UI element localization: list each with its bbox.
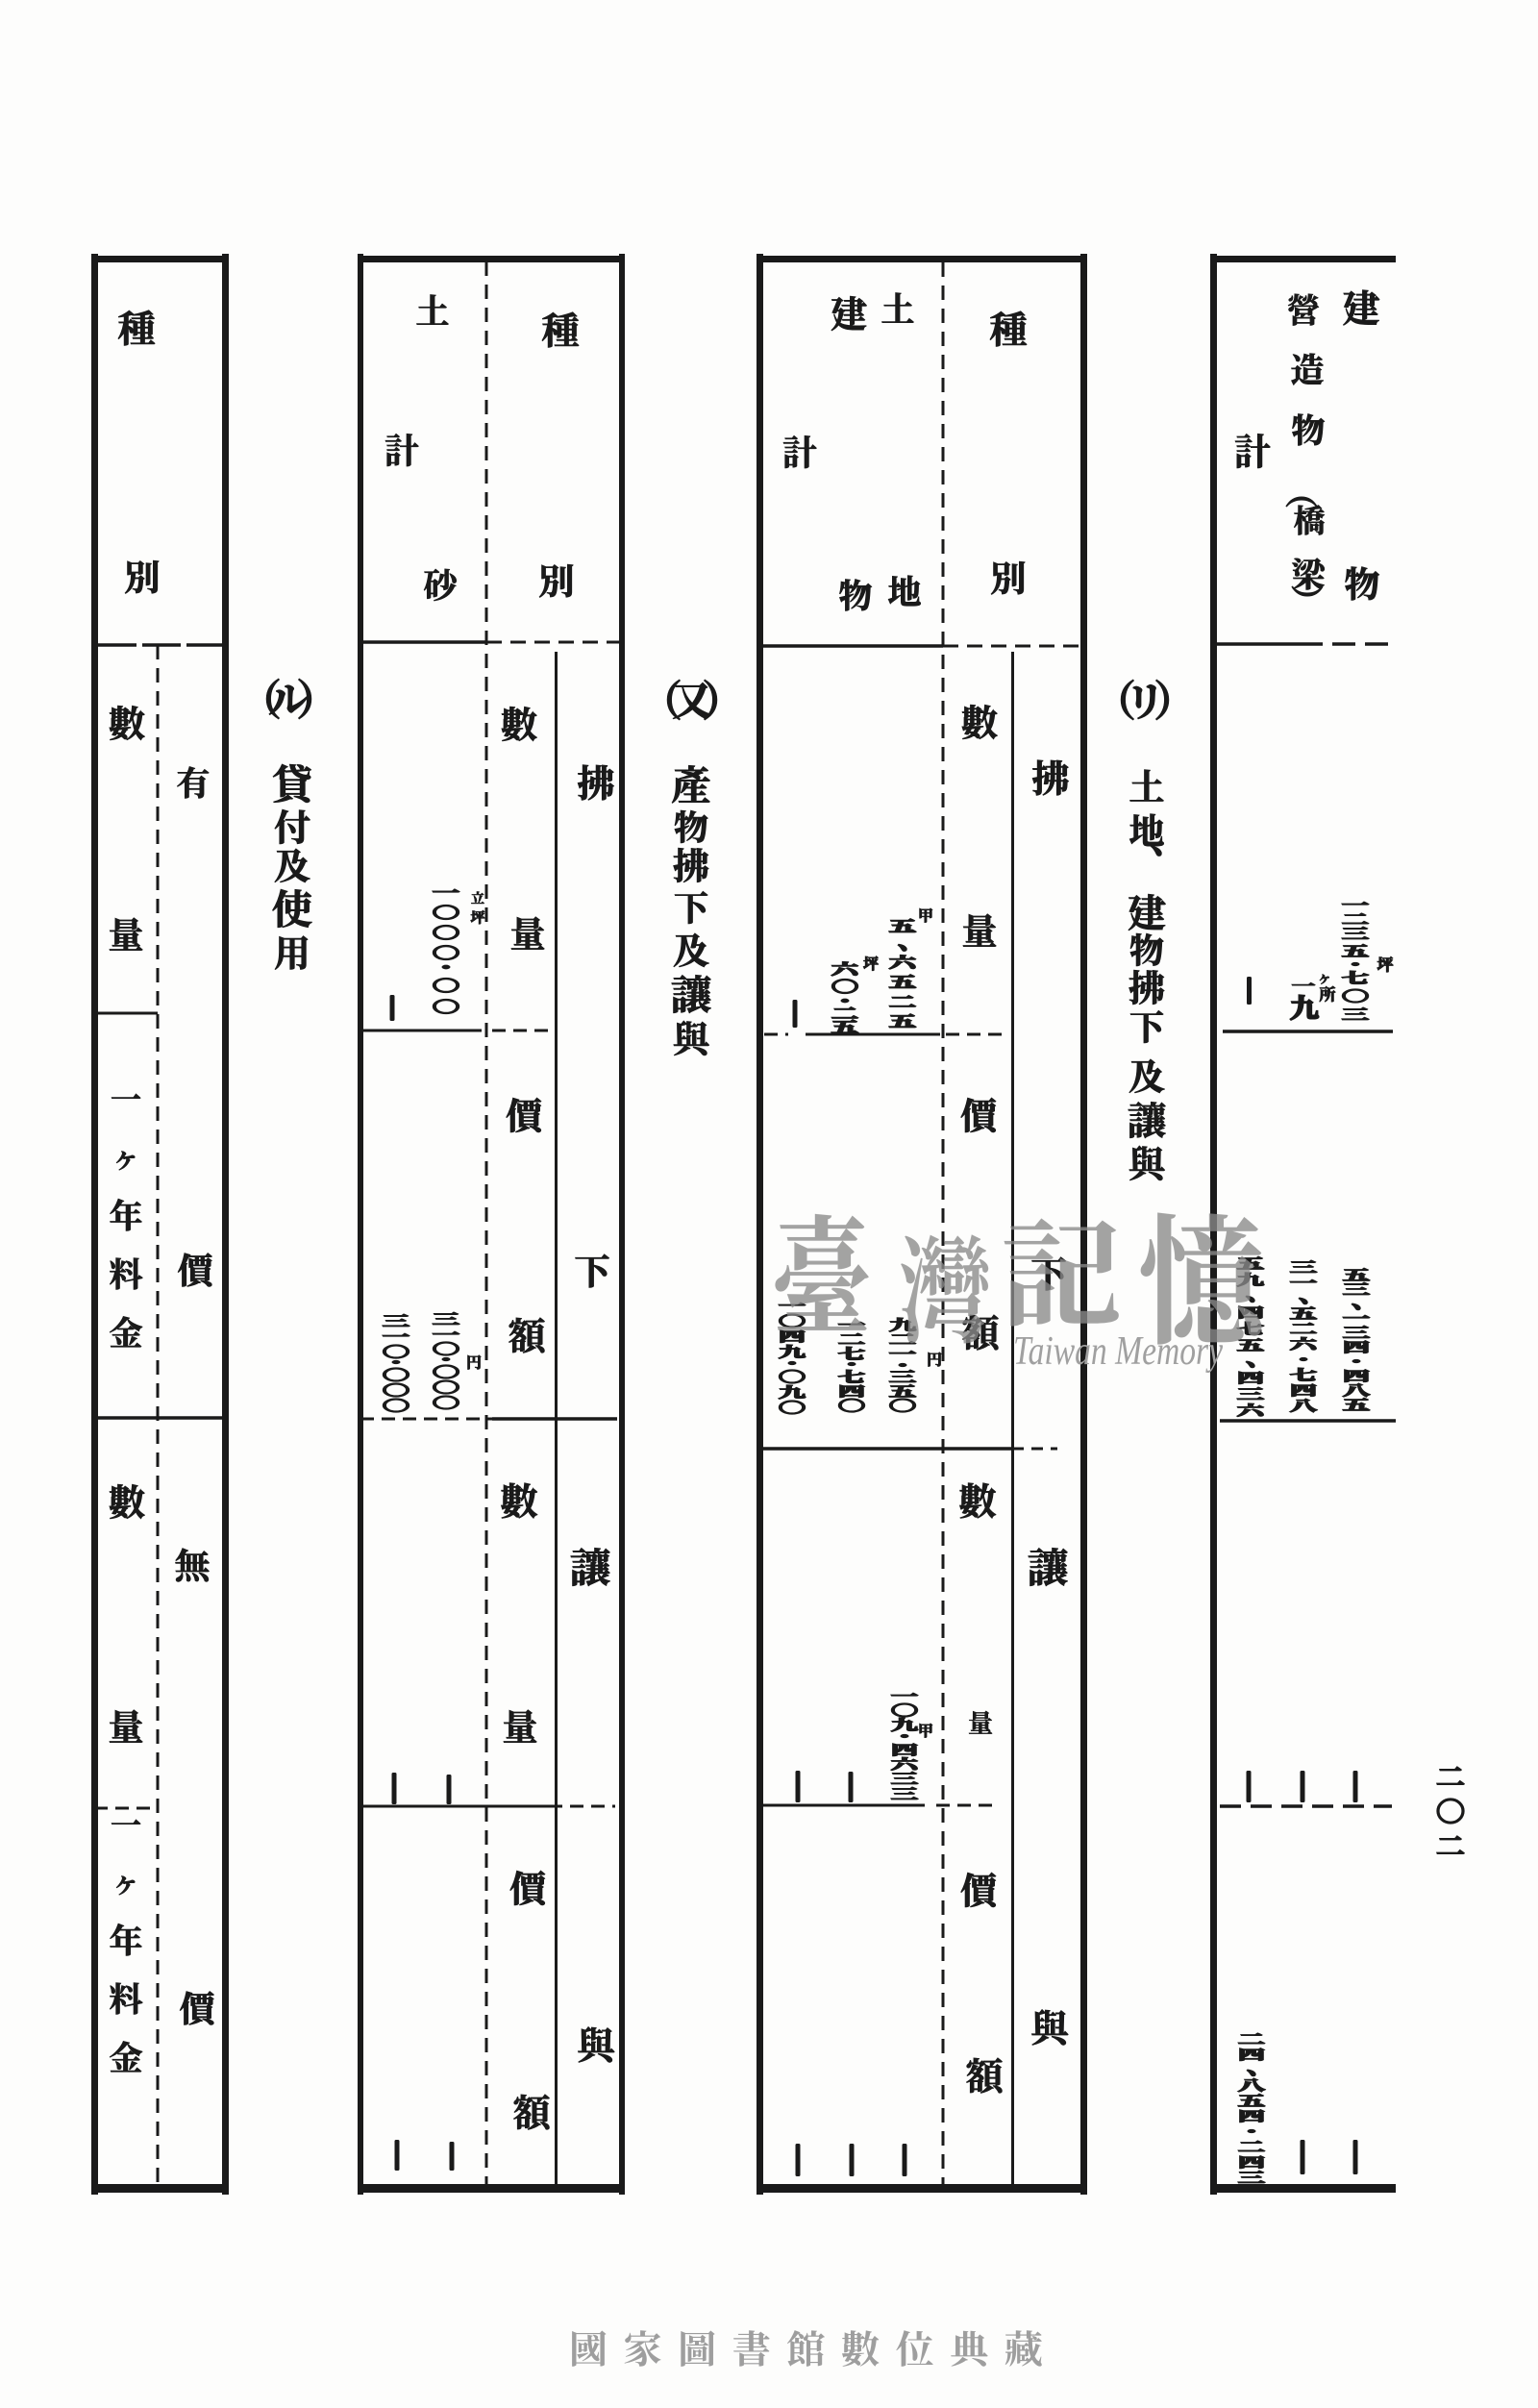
svg-text:Taiwan Memory: Taiwan Memory [1013,1329,1223,1374]
